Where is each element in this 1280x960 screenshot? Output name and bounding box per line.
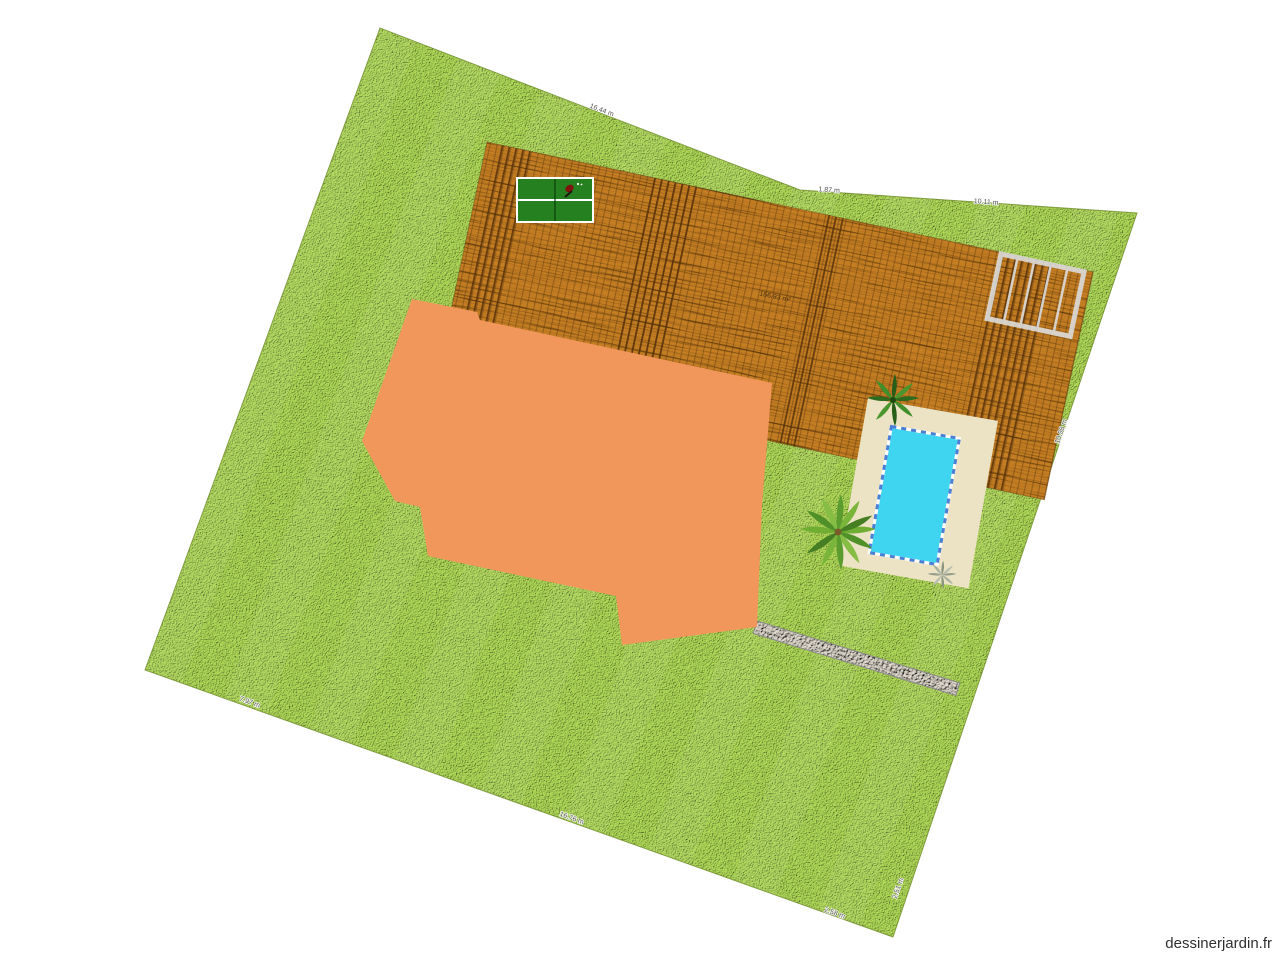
garden-plan-svg: 166.93 m² xyxy=(0,0,1280,960)
garden-planner-canvas: 166.93 m² xyxy=(0,0,1280,960)
watermark: dessinerjardin.fr xyxy=(1165,935,1272,952)
ping-pong-table[interactable] xyxy=(517,178,593,222)
shrub-center xyxy=(890,397,896,403)
palm-trunk xyxy=(835,529,842,536)
